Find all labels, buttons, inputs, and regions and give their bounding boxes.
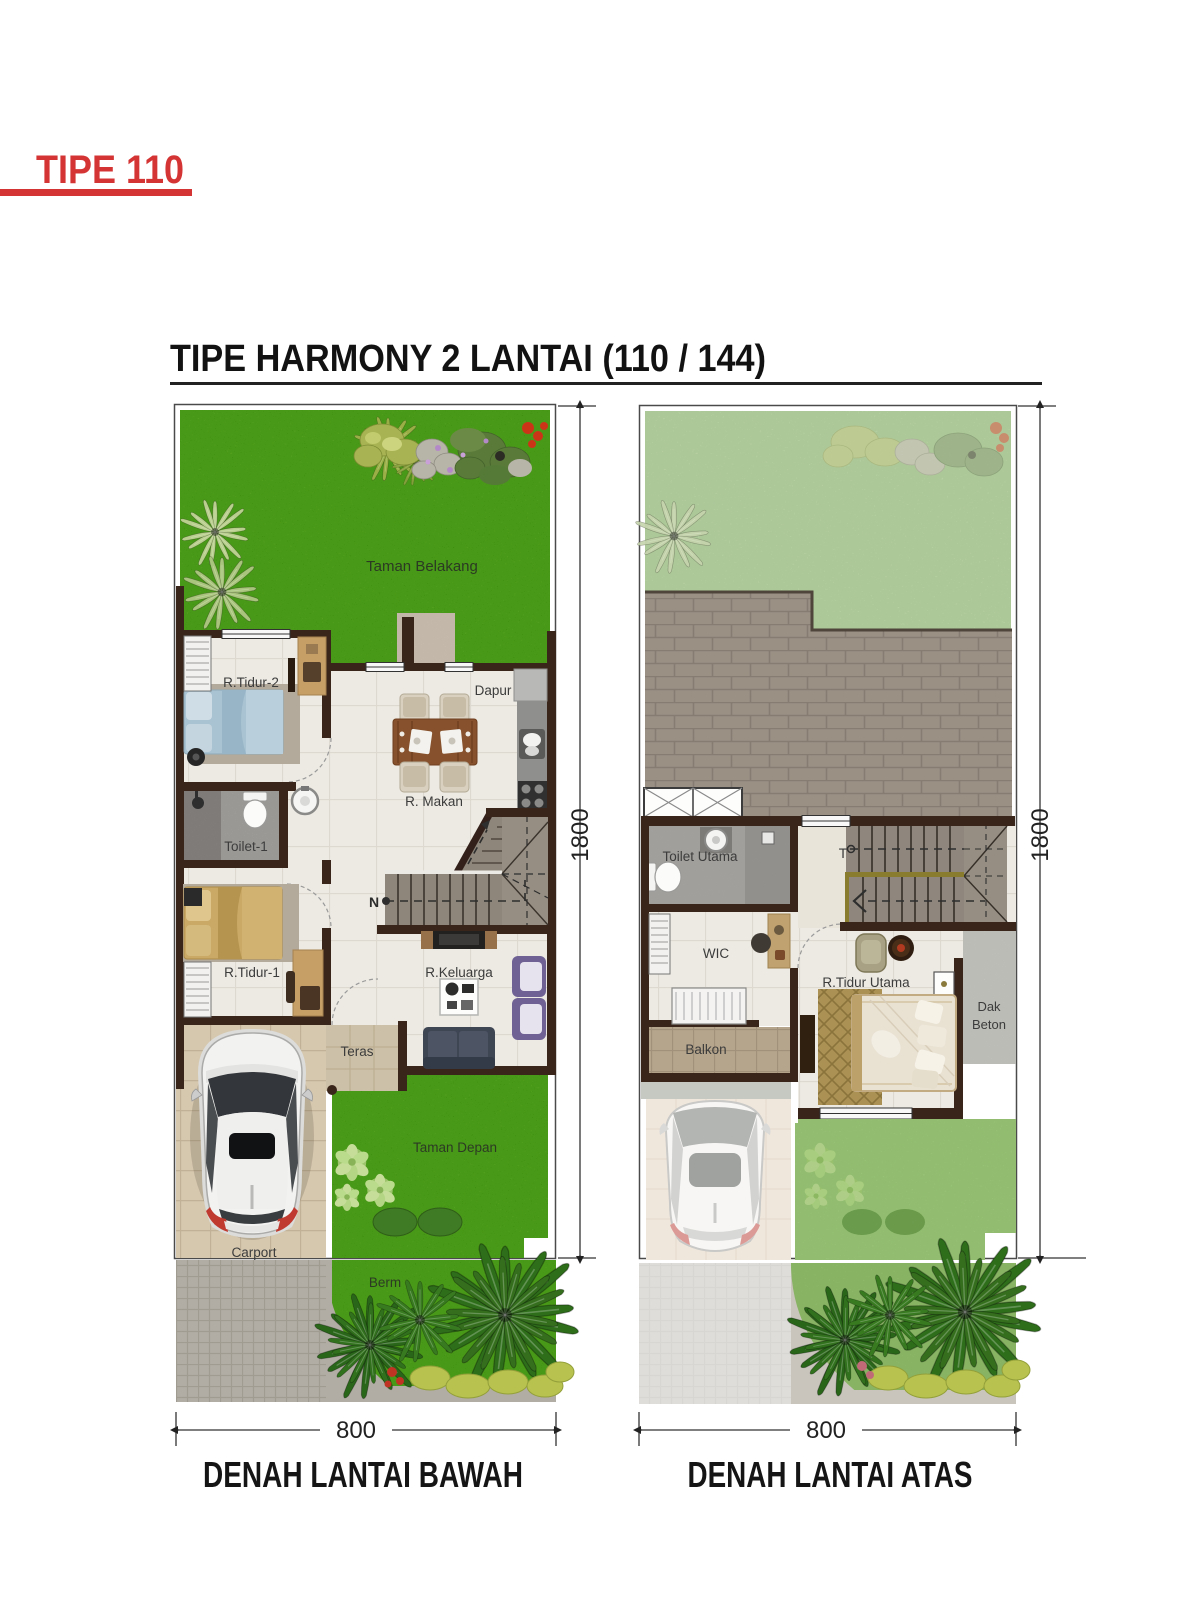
svg-text:T: T bbox=[839, 845, 848, 861]
svg-text:Taman Depan: Taman Depan bbox=[413, 1140, 497, 1155]
svg-text:R. Makan: R. Makan bbox=[405, 794, 463, 809]
svg-text:TIPE HARMONY 2 LANTAI (110 /: TIPE HARMONY 2 LANTAI (110 / 144) bbox=[170, 338, 766, 380]
svg-text:800: 800 bbox=[336, 1417, 376, 1444]
svg-text:DENAH LANTAI ATAS: DENAH LANTAI ATAS bbox=[688, 1454, 973, 1495]
svg-text:WIC: WIC bbox=[703, 946, 729, 961]
svg-text:1800: 1800 bbox=[567, 808, 594, 861]
svg-text:Balkon: Balkon bbox=[685, 1042, 726, 1057]
svg-text:800: 800 bbox=[806, 1417, 846, 1444]
svg-text:Dapur: Dapur bbox=[475, 683, 512, 698]
svg-text:Taman Belakang: Taman Belakang bbox=[366, 558, 478, 575]
svg-text:R.Tidur-1: R.Tidur-1 bbox=[224, 965, 280, 980]
svg-text:Toilet-1: Toilet-1 bbox=[224, 839, 268, 854]
svg-text:Beton: Beton bbox=[972, 1017, 1006, 1032]
svg-text:R.Tidur Utama: R.Tidur Utama bbox=[822, 975, 910, 990]
svg-text:R.Keluarga: R.Keluarga bbox=[425, 965, 493, 980]
svg-text:Carport: Carport bbox=[231, 1245, 276, 1260]
svg-text:Toilet Utama: Toilet Utama bbox=[662, 849, 738, 864]
svg-text:R.Tidur-2: R.Tidur-2 bbox=[223, 675, 279, 690]
svg-text:Berm: Berm bbox=[369, 1275, 401, 1290]
svg-text:N: N bbox=[369, 894, 379, 910]
svg-text:Dak: Dak bbox=[977, 999, 1001, 1014]
svg-text:Teras: Teras bbox=[340, 1044, 373, 1059]
svg-text:1800: 1800 bbox=[1027, 808, 1054, 861]
svg-text:TIPE 110: TIPE 110 bbox=[36, 148, 184, 192]
svg-text:DENAH LANTAI BAWAH: DENAH LANTAI BAWAH bbox=[203, 1454, 523, 1495]
